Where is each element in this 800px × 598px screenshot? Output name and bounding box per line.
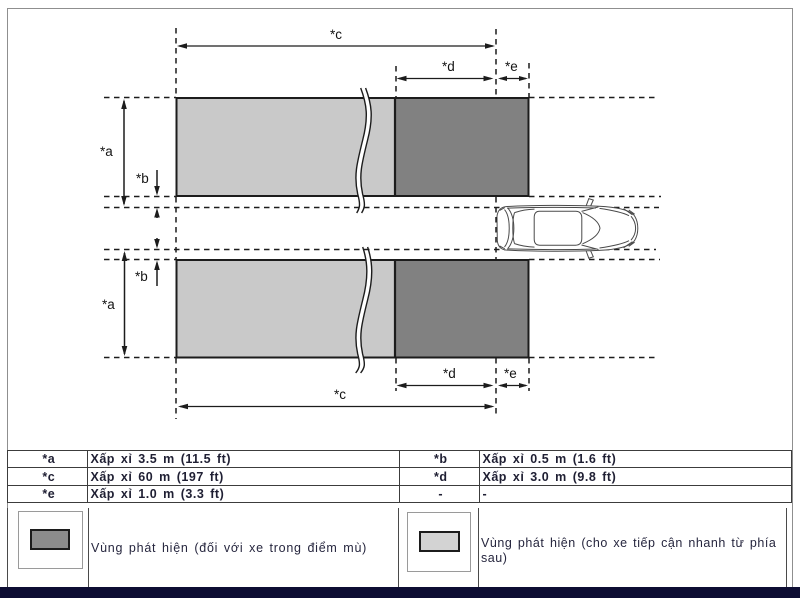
svg-text:*c: *c <box>334 387 346 402</box>
svg-text:*b: *b <box>136 171 149 186</box>
svg-text:*a: *a <box>100 144 113 159</box>
svg-text:*e: *e <box>504 366 517 381</box>
svg-text:*b: *b <box>135 269 148 284</box>
svg-text:*d: *d <box>443 366 456 381</box>
svg-text:*c: *c <box>330 27 342 42</box>
svg-text:*e: *e <box>505 59 518 74</box>
svg-text:*d: *d <box>442 59 455 74</box>
svg-text:*a: *a <box>102 297 115 312</box>
